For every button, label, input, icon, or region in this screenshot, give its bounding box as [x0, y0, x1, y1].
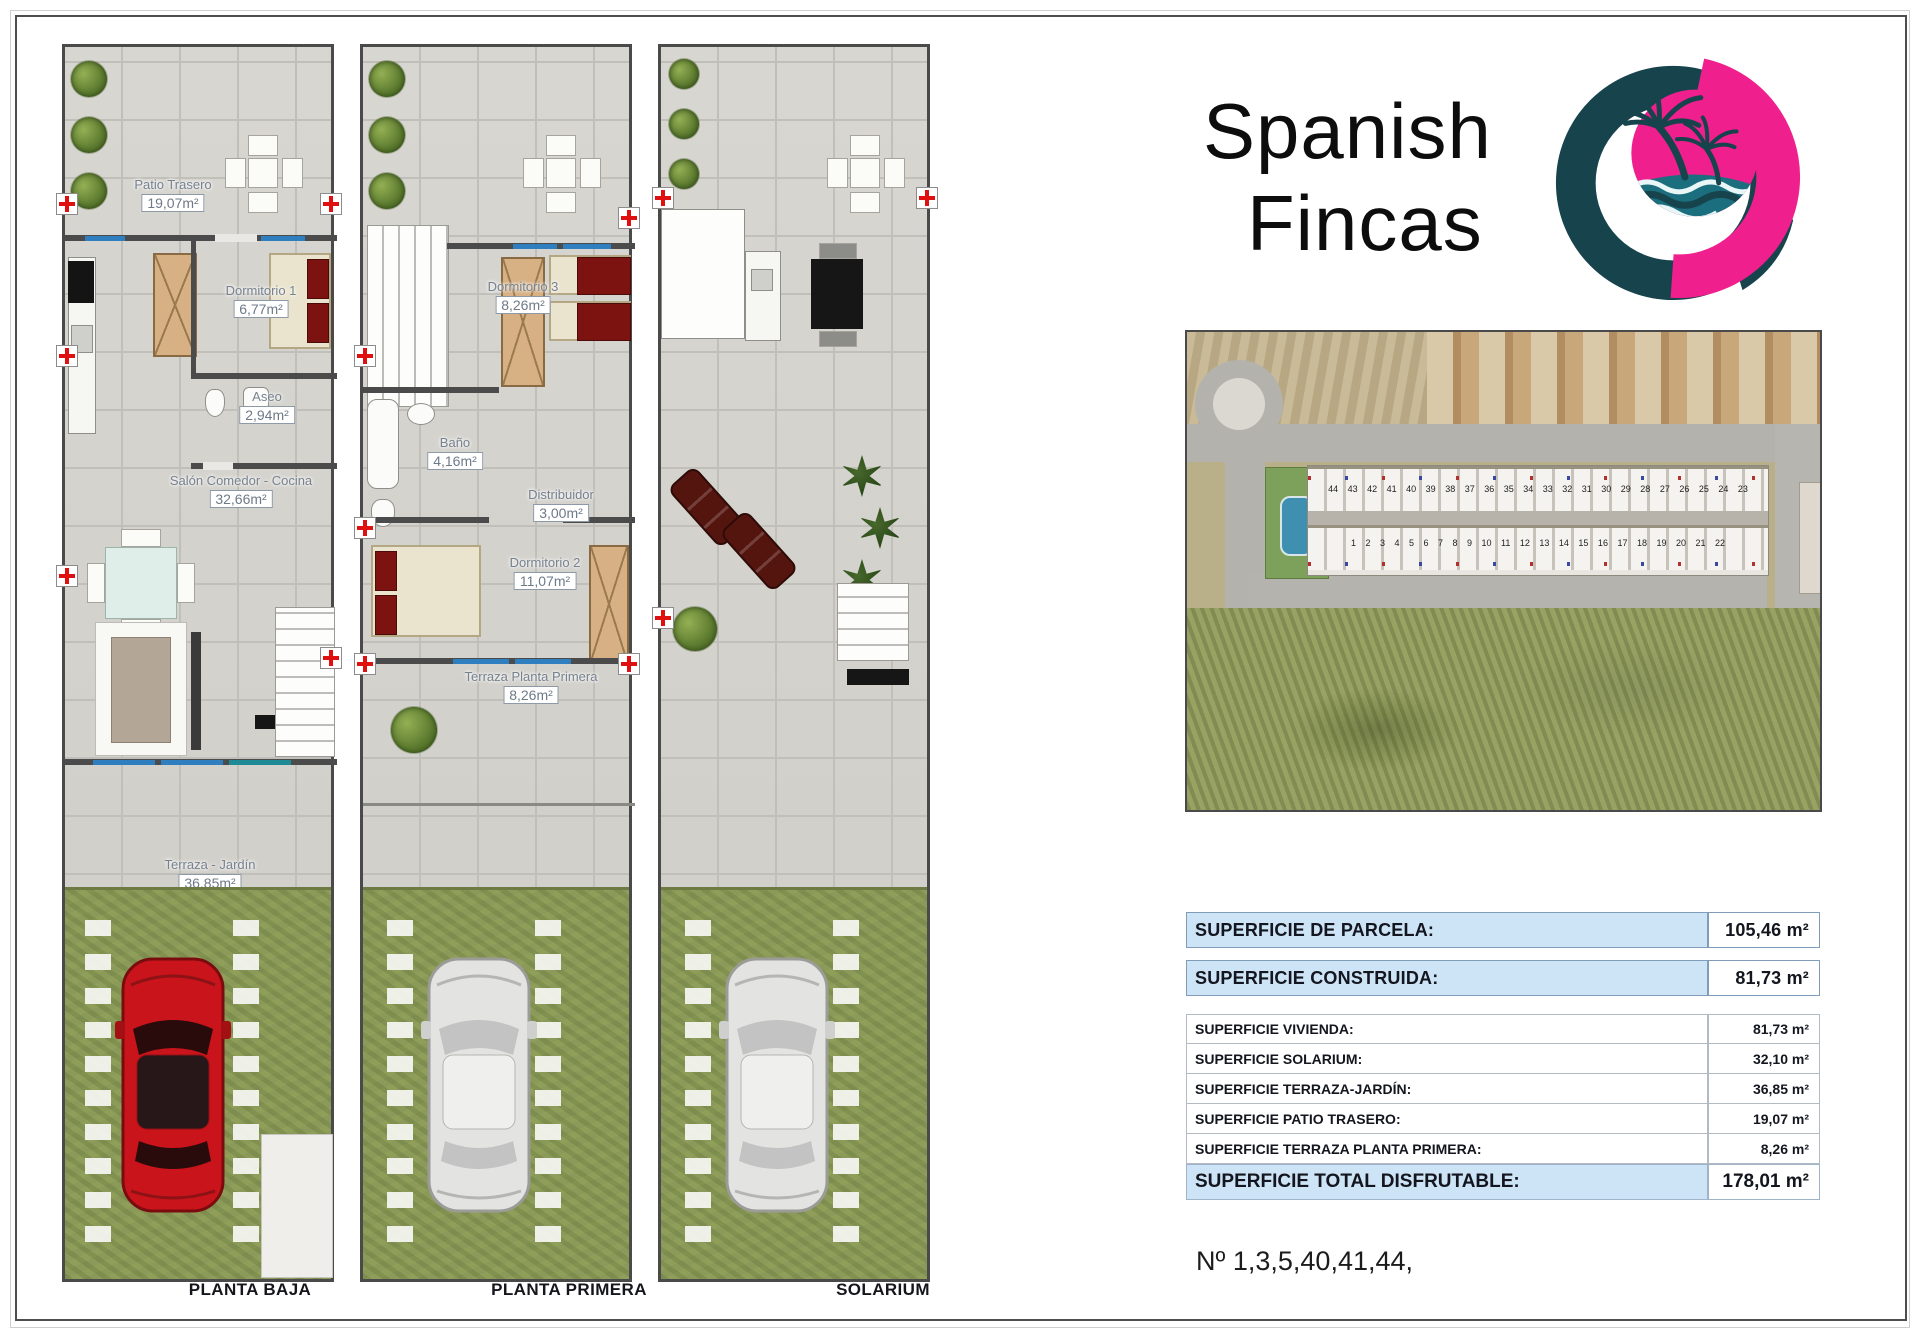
- summary-value: 32,10 m²: [1708, 1044, 1820, 1074]
- survey-marker: [354, 517, 376, 539]
- summary-label: SUPERFICIE TERRAZA PLANTA PRIMERA:: [1186, 1134, 1708, 1164]
- parapet: [847, 669, 909, 685]
- summary-value: 178,01 m²: [1708, 1164, 1820, 1200]
- summary-value: 19,07 m²: [1708, 1104, 1820, 1134]
- aerial-roundabout: [1195, 360, 1283, 448]
- garden: [65, 887, 331, 1279]
- patio-table: [225, 135, 303, 213]
- patio-table: [827, 135, 905, 213]
- kitchenette: [745, 251, 781, 341]
- bathtub: [367, 399, 399, 489]
- stove: [68, 261, 94, 303]
- bed-pillow: [375, 551, 397, 591]
- survey-marker: [56, 565, 78, 587]
- survey-marker: [320, 647, 342, 669]
- room-label: Dormitorio 2 11,07m²: [510, 555, 581, 591]
- driveway-markings: [685, 906, 711, 1242]
- plant: [369, 61, 405, 97]
- window: [513, 244, 557, 249]
- room-label: Salón Comedor - Cocina 32,66m²: [170, 473, 312, 509]
- floorplan-planta-baja: Patio Trasero 19,07m² Dormitorio 1 6,77m…: [62, 44, 334, 1282]
- chair: [121, 529, 161, 547]
- window: [85, 236, 125, 241]
- survey-marker: [56, 345, 78, 367]
- caption-solarium: SOLARIUM: [836, 1280, 930, 1300]
- driveway-markings: [233, 906, 259, 1242]
- summary-label: SUPERFICIE TOTAL DISFRUTABLE:: [1186, 1164, 1708, 1200]
- dining-table: [105, 547, 177, 619]
- aerial-field: [1187, 608, 1820, 810]
- aerial-roof-details: [1308, 476, 1768, 480]
- floorplan-solarium: [658, 44, 930, 1282]
- survey-marker: [652, 187, 674, 209]
- staircase: [837, 583, 909, 661]
- survey-marker: [320, 193, 342, 215]
- summary-label: SUPERFICIE PATIO TRASERO:: [1186, 1104, 1708, 1134]
- summary-row-patio-trasero: SUPERFICIE PATIO TRASERO: 19,07 m²: [1186, 1104, 1820, 1134]
- summary-label: SUPERFICIE TERRAZA-JARDÍN:: [1186, 1074, 1708, 1104]
- brand-name-line2: Fincas: [1247, 178, 1483, 269]
- toilet: [205, 389, 225, 417]
- door-opening: [203, 462, 233, 470]
- survey-marker: [354, 345, 376, 367]
- brand-logo-icon: [1548, 36, 1806, 314]
- plant: [669, 159, 699, 189]
- chair: [177, 563, 195, 603]
- chair: [819, 243, 857, 259]
- survey-marker: [354, 653, 376, 675]
- walkway: [261, 1134, 333, 1278]
- sun-lounger: [719, 509, 799, 593]
- aerial-photo: 44 43 42 41 40 39 38 37 36 35 34 33 32 3…: [1185, 330, 1822, 812]
- caption-planta-primera: PLANTA PRIMERA: [491, 1280, 647, 1300]
- bed-cover: [577, 303, 631, 341]
- summary-row-terraza-primera: SUPERFICIE TERRAZA PLANTA PRIMERA: 8,26 …: [1186, 1134, 1820, 1164]
- plant: [669, 109, 699, 139]
- room-label: Baño 4,16m²: [427, 435, 483, 471]
- survey-marker: [618, 653, 640, 675]
- plant: [391, 707, 437, 753]
- stair-void: [661, 209, 745, 339]
- garden: [363, 887, 629, 1279]
- summary-value: 8,26 m²: [1708, 1134, 1820, 1164]
- plant: [369, 117, 405, 153]
- aerial-unit-numbers-bottom: 1 2 3 4 5 6 7 8 9 10 11 12 13 14 15 16 1…: [1308, 538, 1768, 548]
- summary-value: 105,46 m²: [1708, 912, 1820, 948]
- garden: [661, 887, 927, 1279]
- survey-marker: [618, 207, 640, 229]
- outdoor-table: [811, 259, 863, 329]
- window: [93, 760, 155, 765]
- chair: [87, 563, 105, 603]
- driveway-markings: [85, 906, 111, 1242]
- wardrobe: [501, 257, 545, 387]
- summary-row-solarium: SUPERFICIE SOLARIUM: 32,10 m²: [1186, 1044, 1820, 1074]
- driveway-markings: [387, 906, 413, 1242]
- window: [161, 760, 223, 765]
- room-label: Patio Trasero 19,07m²: [134, 177, 211, 213]
- wall: [363, 387, 499, 393]
- wall: [191, 373, 337, 379]
- gray-car: [419, 940, 539, 1230]
- potted-plant: [841, 455, 883, 497]
- summary-row-construida: SUPERFICIE CONSTRUIDA: 81,73 m²: [1186, 960, 1820, 996]
- summary-row-parcela: SUPERFICIE DE PARCELA: 105,46 m²: [1186, 912, 1820, 948]
- caption-planta-baja: PLANTA BAJA: [189, 1280, 311, 1300]
- summary-value: 36,85 m²: [1708, 1074, 1820, 1104]
- aerial-building-right: [1799, 482, 1822, 594]
- gray-car: [717, 940, 837, 1230]
- summary-label: SUPERFICIE SOLARIUM:: [1186, 1044, 1708, 1074]
- unit-numbers-note: Nº 1,3,5,40,41,44,: [1196, 1246, 1413, 1277]
- survey-marker: [652, 607, 674, 629]
- summary-label: SUPERFICIE CONSTRUIDA:: [1186, 960, 1708, 996]
- aerial-unit-numbers-top: 44 43 42 41 40 39 38 37 36 35 34 33 32 3…: [1308, 484, 1768, 494]
- summary-label: SUPERFICIE DE PARCELA:: [1186, 912, 1708, 948]
- bed-pillow: [307, 303, 329, 343]
- window: [261, 236, 305, 241]
- room-label: Terraza Planta Primera 8,26m²: [465, 669, 598, 705]
- room-label: Aseo 2,94m²: [239, 389, 295, 425]
- chair: [819, 331, 857, 347]
- door-opening: [215, 234, 257, 242]
- summary-row-vivienda: SUPERFICIE VIVIENDA: 81,73 m²: [1186, 1014, 1820, 1044]
- window: [453, 659, 509, 664]
- sofa: [111, 637, 171, 743]
- summary-row-total: SUPERFICIE TOTAL DISFRUTABLE: 178,01 m²: [1186, 1164, 1820, 1200]
- survey-marker: [916, 187, 938, 209]
- window: [515, 659, 571, 664]
- staircase: [275, 607, 335, 757]
- aerial-townhouse-strip: 44 43 42 41 40 39 38 37 36 35 34 33 32 3…: [1307, 465, 1769, 576]
- summary-value: 81,73 m²: [1708, 1014, 1820, 1044]
- sliding-door: [229, 760, 291, 765]
- aerial-lane: [1308, 511, 1768, 525]
- room-label: Dormitorio 3 8,26m²: [488, 279, 559, 315]
- plant: [673, 607, 717, 651]
- room-label: Dormitorio 1 6,77m²: [226, 283, 297, 319]
- summary-value: 81,73 m²: [1708, 960, 1820, 996]
- floorplan-planta-primera: Dormitorio 3 8,26m² Baño 4,16m² Distribu…: [360, 44, 632, 1282]
- patio-table: [523, 135, 601, 213]
- plant: [71, 61, 107, 97]
- window: [563, 244, 611, 249]
- plant: [369, 173, 405, 209]
- aerial-road: [1247, 574, 1767, 608]
- aerial-roof-details: [1308, 562, 1768, 566]
- aerial-road: [1187, 424, 1820, 462]
- summary-row-terraza-jardin: SUPERFICIE TERRAZA-JARDÍN: 36,85 m²: [1186, 1074, 1820, 1104]
- wardrobe: [589, 545, 629, 663]
- wall: [363, 517, 489, 523]
- survey-marker: [56, 193, 78, 215]
- sink: [751, 269, 773, 291]
- brand-name-line1: Spanish: [1203, 86, 1492, 177]
- plant: [669, 59, 699, 89]
- bed-cover: [577, 257, 631, 295]
- plant: [71, 117, 107, 153]
- potted-plant: [859, 507, 901, 549]
- red-car: [113, 940, 233, 1230]
- summary-label: SUPERFICIE VIVIENDA:: [1186, 1014, 1708, 1044]
- tv-unit: [191, 632, 201, 750]
- aerial-buildings-top: [1427, 332, 1820, 426]
- terrace-edge: [363, 803, 635, 806]
- bed-pillow: [375, 595, 397, 635]
- bathroom-sink: [407, 403, 435, 425]
- bed-pillow: [307, 259, 329, 299]
- staircase: [367, 225, 449, 407]
- wall: [191, 235, 196, 377]
- room-label: Distribuidor 3,00m²: [528, 487, 594, 523]
